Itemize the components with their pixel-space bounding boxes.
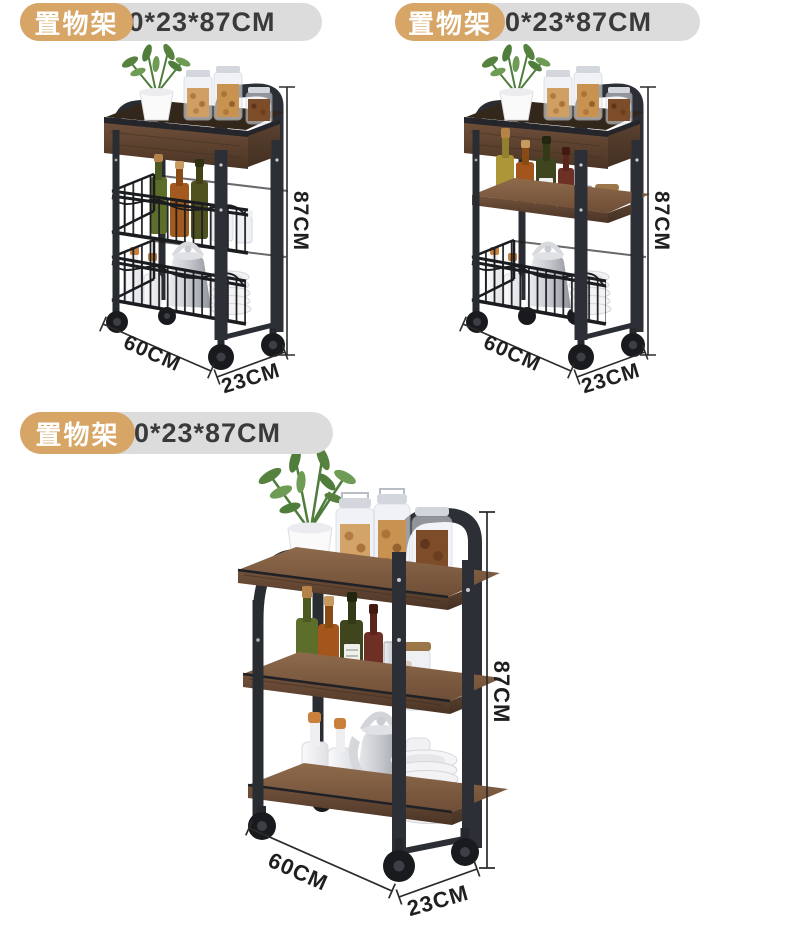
badge-group-2: 60*23*87CM 置物架: [395, 3, 700, 41]
product-gallery-art: [0, 0, 790, 943]
product-detail-image: 60*23*87CM 置物架 60*23*87CM 置物架 60*23*87CM…: [0, 0, 790, 943]
cart-photo-2: [464, 42, 650, 370]
jars-2: [544, 66, 632, 124]
category-pill-2: 置物架: [395, 3, 505, 41]
cart-photo-1: [104, 42, 288, 370]
height-label-3: 87CM: [488, 661, 514, 724]
cart-photo-3: [238, 444, 508, 882]
height-label-2: 87CM: [649, 191, 673, 251]
height-label-1: 87CM: [288, 191, 312, 251]
badge-group-3: 60*23*87CM 置物架: [20, 412, 333, 454]
category-pill-1: 置物架: [20, 3, 133, 41]
jars-1: [184, 66, 272, 124]
category-pill-3: 置物架: [20, 412, 135, 454]
badge-group-1: 60*23*87CM 置物架: [20, 3, 322, 41]
